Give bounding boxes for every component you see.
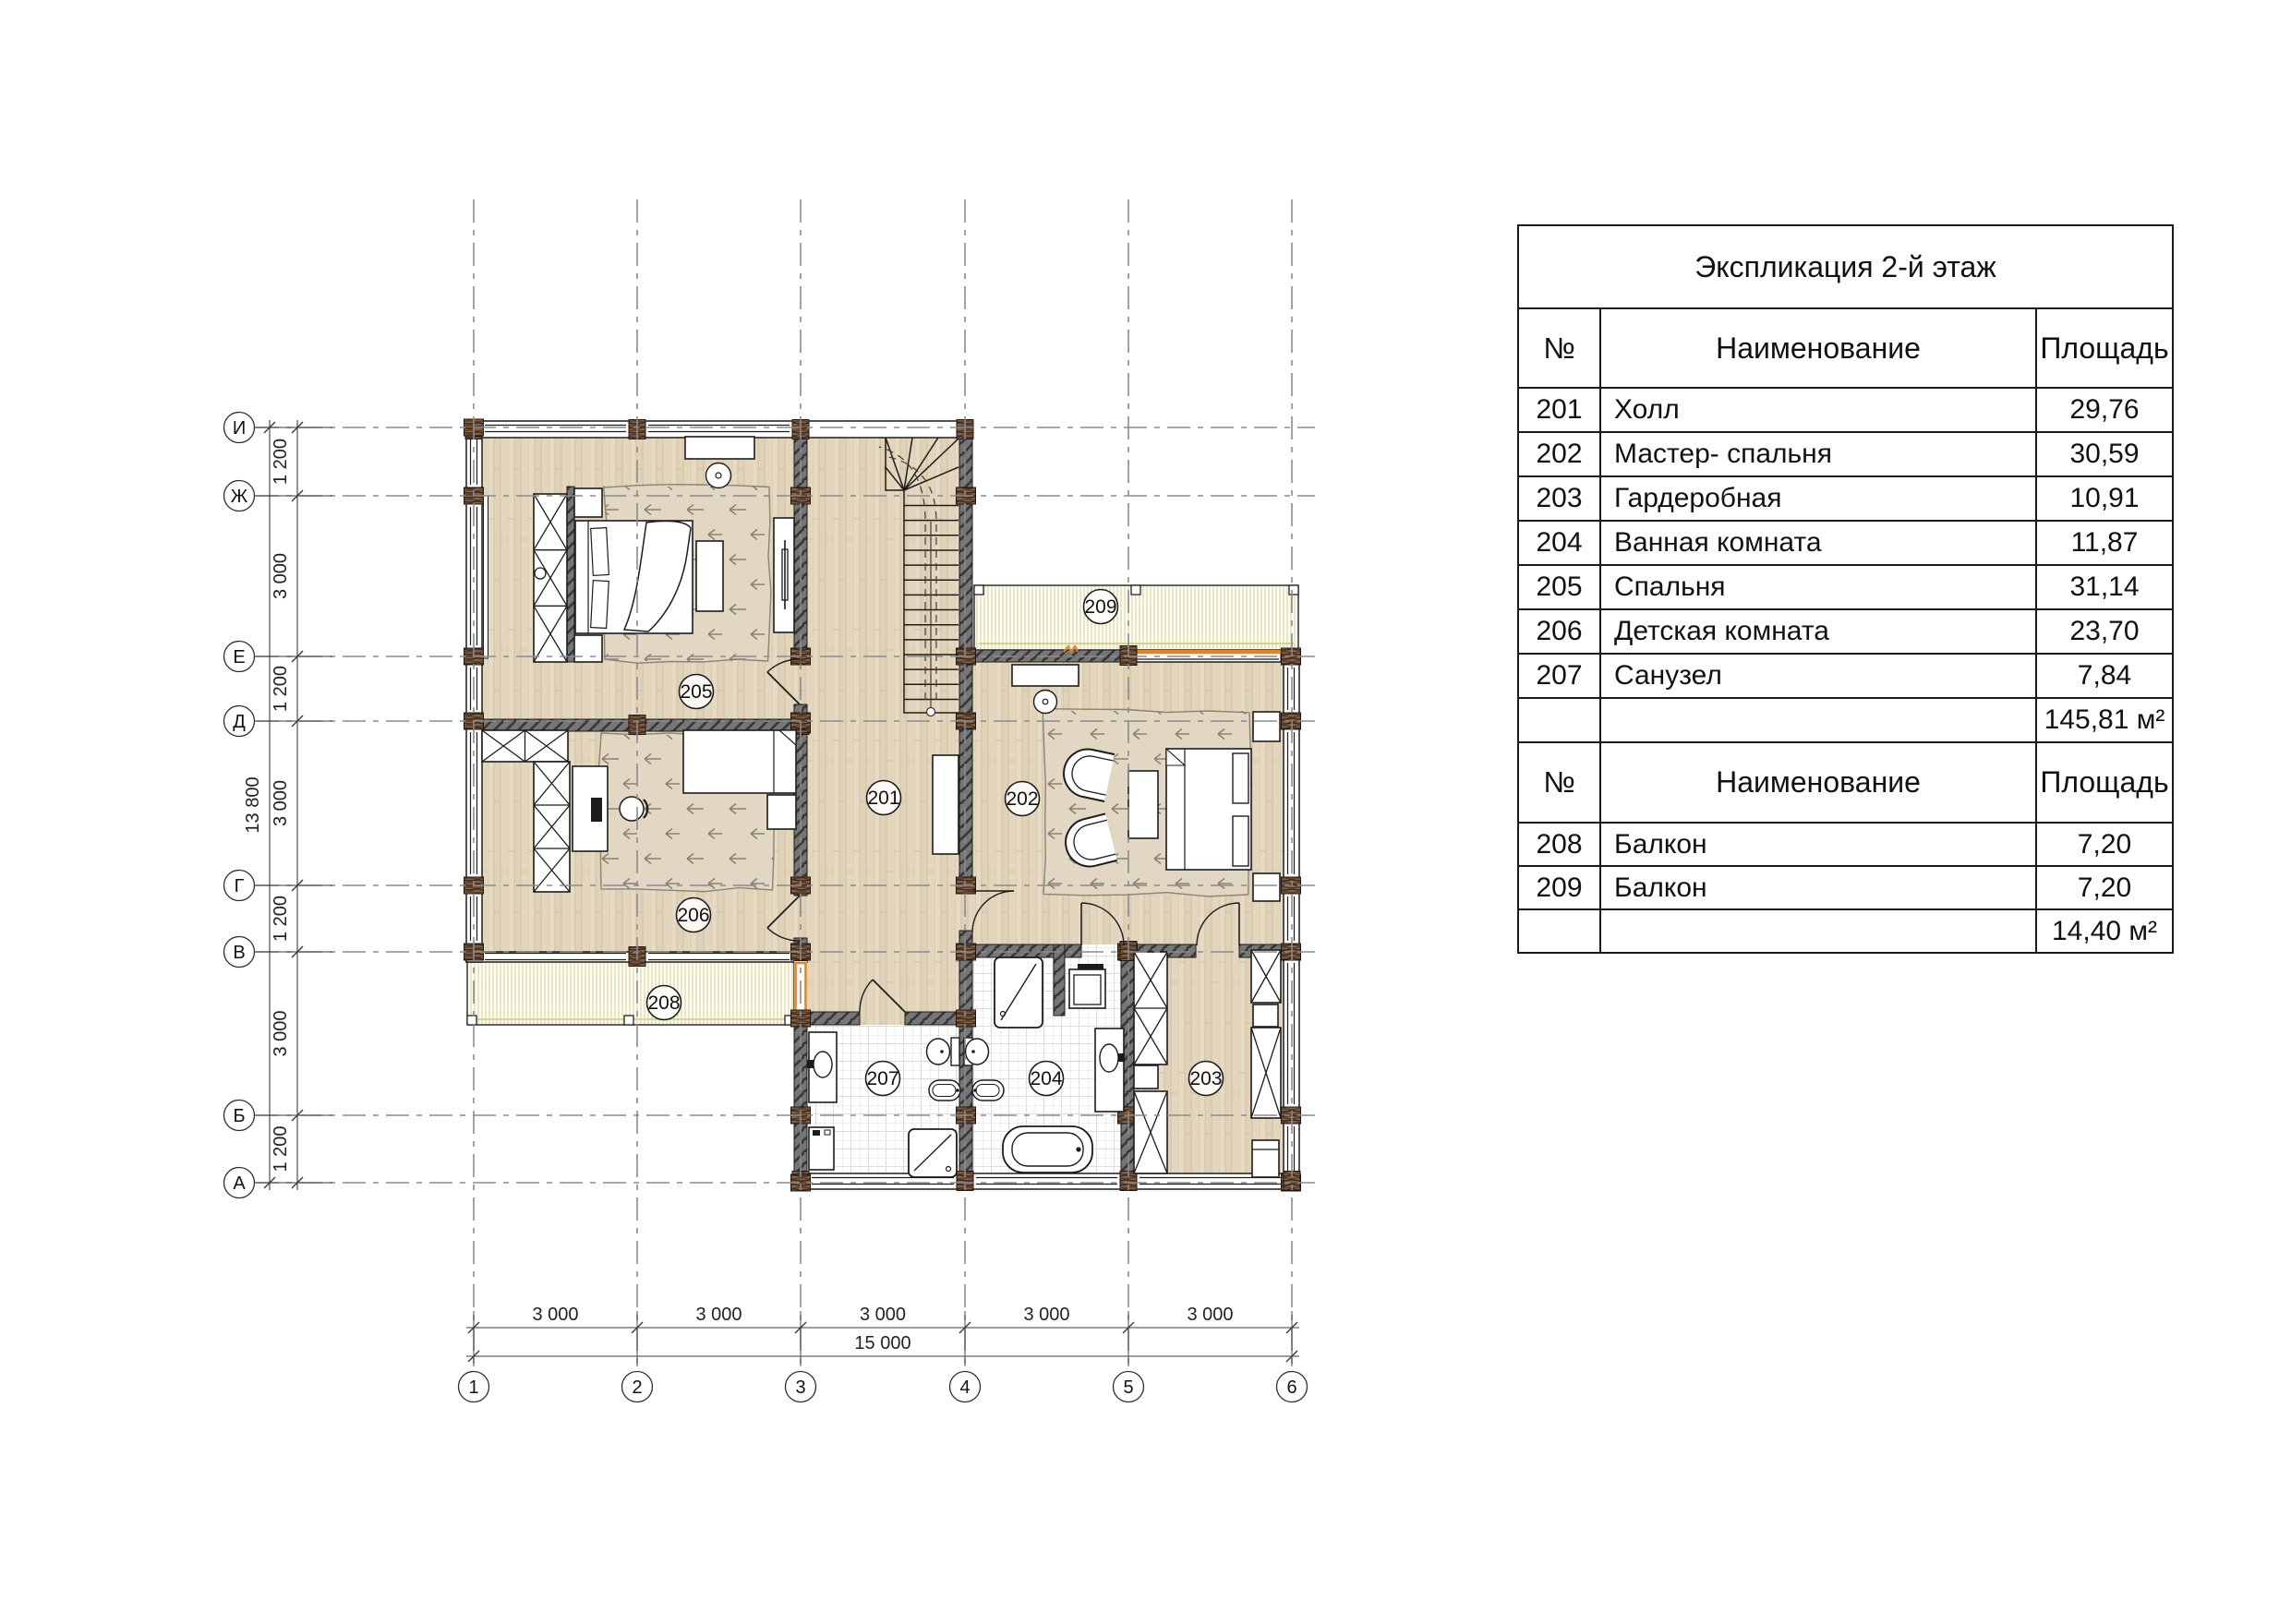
svg-text:1: 1 (468, 1377, 478, 1398)
svg-text:3 000: 3 000 (1023, 1305, 1069, 1325)
svg-text:В: В (233, 943, 245, 963)
svg-text:3 000: 3 000 (271, 1010, 291, 1056)
svg-text:6: 6 (1286, 1377, 1296, 1398)
svg-text:1 200: 1 200 (271, 896, 291, 942)
svg-text:3 000: 3 000 (532, 1305, 578, 1325)
svg-text:3 000: 3 000 (271, 553, 291, 599)
svg-text:206: 206 (677, 905, 709, 926)
svg-text:205: 205 (680, 681, 712, 703)
svg-text:3 000: 3 000 (271, 780, 291, 826)
svg-text:1 200: 1 200 (271, 666, 291, 712)
svg-text:1 200: 1 200 (271, 439, 291, 485)
svg-text:2: 2 (632, 1377, 642, 1398)
svg-text:201: 201 (867, 788, 899, 809)
svg-text:204: 204 (1030, 1068, 1062, 1089)
svg-text:202: 202 (1006, 788, 1038, 810)
svg-text:208: 208 (647, 992, 680, 1014)
svg-text:А: А (233, 1173, 246, 1194)
svg-text:3 000: 3 000 (1187, 1305, 1233, 1325)
svg-text:Б: Б (233, 1106, 245, 1126)
svg-text:5: 5 (1123, 1377, 1133, 1398)
svg-text:И: И (233, 418, 246, 439)
svg-text:209: 209 (1084, 596, 1116, 618)
svg-text:4: 4 (959, 1377, 970, 1398)
svg-text:Е: Е (233, 647, 245, 668)
svg-text:15 000: 15 000 (854, 1333, 910, 1353)
svg-text:Д: Д (233, 712, 246, 732)
svg-text:203: 203 (1189, 1068, 1222, 1089)
svg-text:Ж: Ж (231, 487, 248, 507)
svg-text:3 000: 3 000 (860, 1305, 906, 1325)
svg-text:3: 3 (795, 1377, 805, 1398)
svg-text:13 800: 13 800 (243, 776, 263, 833)
svg-text:1 200: 1 200 (271, 1125, 291, 1172)
svg-text:Г: Г (235, 876, 245, 896)
svg-text:207: 207 (866, 1068, 898, 1089)
svg-text:3 000: 3 000 (695, 1305, 742, 1325)
